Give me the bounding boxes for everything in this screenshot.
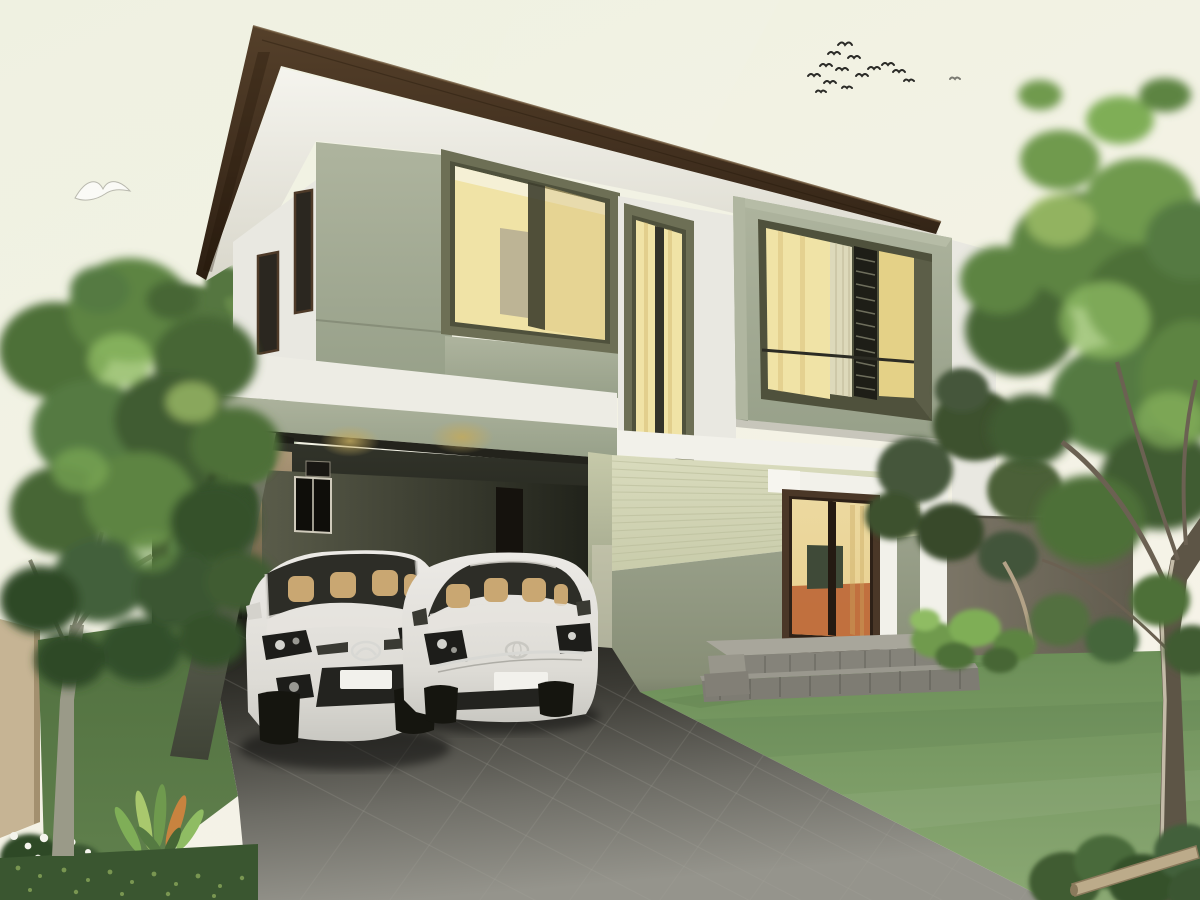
toyota-prius [402,553,598,724]
tall-window [624,203,694,463]
wheel [538,681,574,717]
side-mirror [576,600,591,616]
slim-window-right [295,190,312,313]
carport-inner-door [496,487,523,557]
wheel [258,691,300,745]
slim-window-left [258,252,278,354]
rendering-canvas: 3D exterior rendering of a modern two-st… [0,0,1200,900]
ladder-grille [854,246,877,400]
bay-window [733,196,952,448]
wall-art [306,461,330,477]
license-plate [340,670,392,689]
ceiling-light-glow [320,425,380,457]
house-rendering: architectural-rendering [0,0,1200,900]
wheel [424,685,458,724]
interior-door-silhouette [500,228,528,318]
ceiling-light-glow [430,420,494,454]
interior-panel [807,545,843,589]
